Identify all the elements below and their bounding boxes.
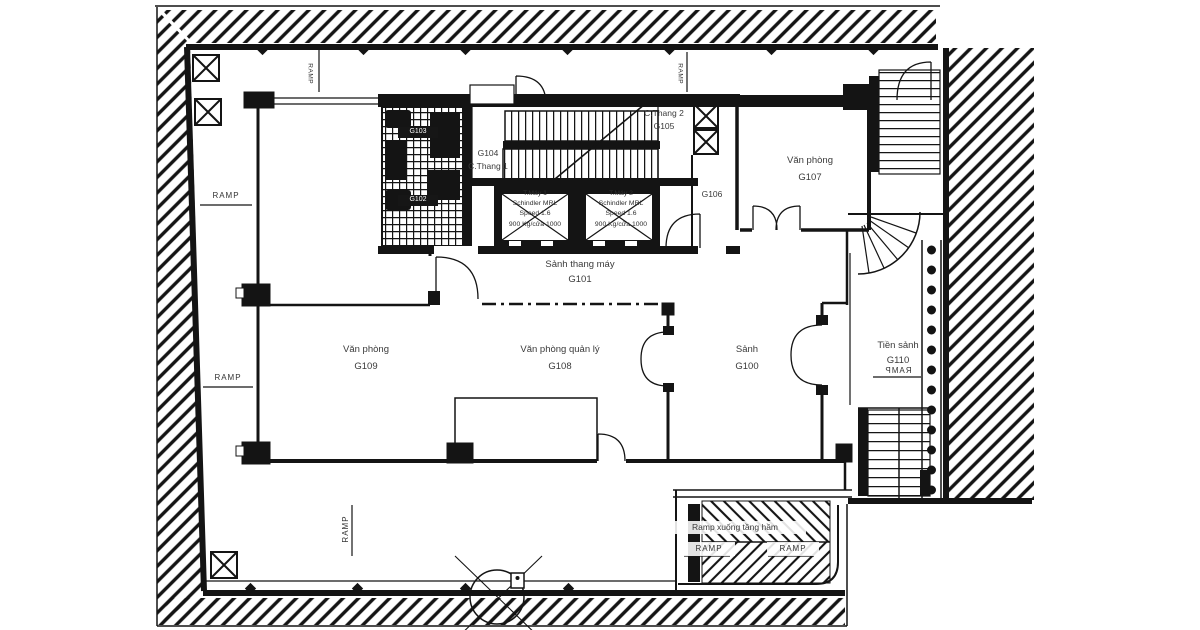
ramp-label-basement-1: RAMP xyxy=(683,542,735,556)
ramp-label-south-vertical: RAMP xyxy=(339,503,353,555)
elevator-label-1: T.Máy 1Schindler MRL Speed 1.6900 Kg/cửa… xyxy=(503,189,567,230)
room-label-g104: G104C.Thang 1 xyxy=(460,147,516,173)
room-label-g106: G106 xyxy=(694,188,730,201)
room-label-g105: C.Thang 2G105 xyxy=(636,107,692,133)
duct-xboxes xyxy=(694,104,718,154)
room-label-g109: Văn phòngG109 xyxy=(300,342,432,375)
core-south-wall xyxy=(378,246,740,254)
ramp-label-basement-2: RAMP xyxy=(767,542,819,556)
northeast-stair xyxy=(869,70,940,174)
room-label-g103: G103 xyxy=(398,128,438,136)
floor-plan-drawing xyxy=(0,0,1200,630)
basement-ramp-title: Ramp xuống tầng hầm xyxy=(664,521,806,534)
room-label-g102: G102 xyxy=(398,196,438,204)
ramp-label-west-1: RAMP xyxy=(200,189,252,203)
room-label-g101: Sảnh thang máyG101 xyxy=(520,257,640,287)
ramp-label-g110-mirrored: RAMP xyxy=(868,364,928,378)
southeast-stair xyxy=(858,408,930,498)
glass-partition xyxy=(482,303,674,461)
winder-stair xyxy=(848,212,944,274)
room-label-g100: SảnhG100 xyxy=(702,342,792,375)
ramp-label-west-2: RAMP xyxy=(202,371,254,385)
ramp-label-north-2: RAMP xyxy=(674,52,685,96)
ramp-label-north-1: RAMP xyxy=(304,52,315,96)
floor-plan-page: Văn phòngG109 Văn phòng quản lýG108 Sảnh… xyxy=(0,0,1200,630)
reception-desk xyxy=(455,398,597,461)
g107-walls xyxy=(740,84,870,461)
elevator-label-2: T.Máy 2Schindler MRL Speed 1.6900 Kg/cửa… xyxy=(589,189,653,230)
room-label-g108: Văn phòng quản lýG108 xyxy=(490,342,630,375)
room-label-g107: Văn phòngG107 xyxy=(768,153,852,186)
core-north-wall xyxy=(378,94,740,107)
